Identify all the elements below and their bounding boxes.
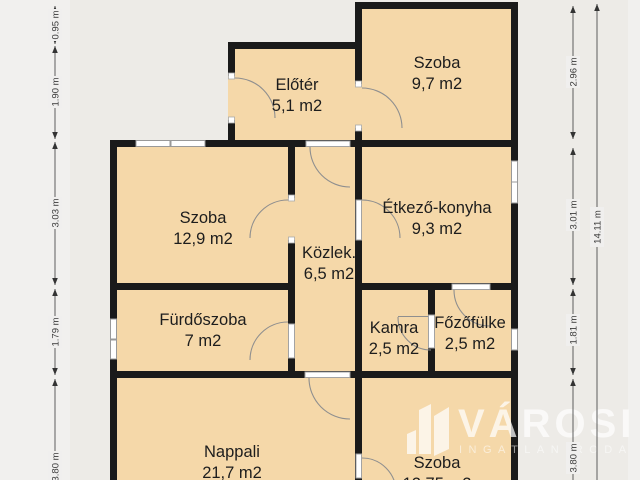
svg-text:9,3 m2: 9,3 m2 bbox=[412, 220, 462, 238]
dim-left-0: 0.95 m bbox=[51, 10, 62, 39]
svg-text:Kamra: Kamra bbox=[370, 319, 419, 337]
window-furdoszoba-2 bbox=[111, 340, 117, 359]
svg-text:Szoba: Szoba bbox=[414, 454, 462, 472]
dim-right-total: 14.11 m bbox=[593, 210, 604, 244]
svg-text:Fürdőszoba: Fürdőszoba bbox=[159, 311, 247, 329]
svg-text:Szoba: Szoba bbox=[414, 54, 462, 72]
svg-text:Szoba: Szoba bbox=[180, 209, 228, 227]
logo-subtitle: INGATLANIRODA bbox=[459, 444, 633, 456]
svg-text:21,7 m2: 21,7 m2 bbox=[202, 464, 262, 480]
dim-right-0: 2.96 m bbox=[569, 57, 580, 86]
svg-text:Étkező-konyha: Étkező-konyha bbox=[382, 198, 492, 217]
window-szoba-left-2 bbox=[171, 141, 205, 147]
svg-text:6,5 m2: 6,5 m2 bbox=[304, 265, 354, 283]
svg-text:Előtér: Előtér bbox=[275, 76, 319, 94]
svg-text:12,9 m2: 12,9 m2 bbox=[173, 230, 233, 248]
svg-text:7 m2: 7 m2 bbox=[185, 332, 222, 350]
dim-right-3: 3.80 m bbox=[569, 443, 580, 472]
dim-right-2: 1.81 m bbox=[569, 315, 580, 344]
svg-text:5,1 m2: 5,1 m2 bbox=[272, 97, 322, 115]
dim-left-1: 1.90 m bbox=[51, 77, 62, 106]
svg-text:2,5 m2: 2,5 m2 bbox=[369, 340, 419, 358]
dimension-line-left: 0.95 m 1.90 m 3.03 m 1.79 m 3.80 m bbox=[48, 6, 62, 480]
logo-title: VÁROSI bbox=[458, 401, 635, 446]
svg-text:12,75 m2: 12,75 m2 bbox=[403, 475, 472, 480]
window-fozofulke bbox=[512, 329, 518, 350]
dim-left-2: 3.03 m bbox=[51, 198, 62, 227]
svg-text:Közlek.: Közlek. bbox=[302, 244, 356, 262]
window-etkezo-1 bbox=[512, 161, 518, 182]
svg-text:Nappali: Nappali bbox=[204, 443, 260, 461]
window-etkezo-2 bbox=[512, 182, 518, 203]
dim-right-1: 3.01 m bbox=[569, 200, 580, 229]
dim-left-4: 3.80 m bbox=[51, 452, 62, 480]
svg-text:2,5 m2: 2,5 m2 bbox=[445, 335, 495, 353]
window-furdoszoba-1 bbox=[111, 319, 117, 339]
window-szoba-left-1 bbox=[136, 141, 170, 147]
svg-text:9,7 m2: 9,7 m2 bbox=[412, 75, 462, 93]
floor-plan-svg: VÁROSI INGATLANIRODA Előtér 5,1 m2 Szoba… bbox=[0, 0, 640, 480]
floor-plan-image: VÁROSI INGATLANIRODA Előtér 5,1 m2 Szoba… bbox=[0, 0, 640, 480]
dim-left-3: 1.79 m bbox=[51, 317, 62, 346]
svg-text:Főzőfülke: Főzőfülke bbox=[434, 314, 506, 332]
